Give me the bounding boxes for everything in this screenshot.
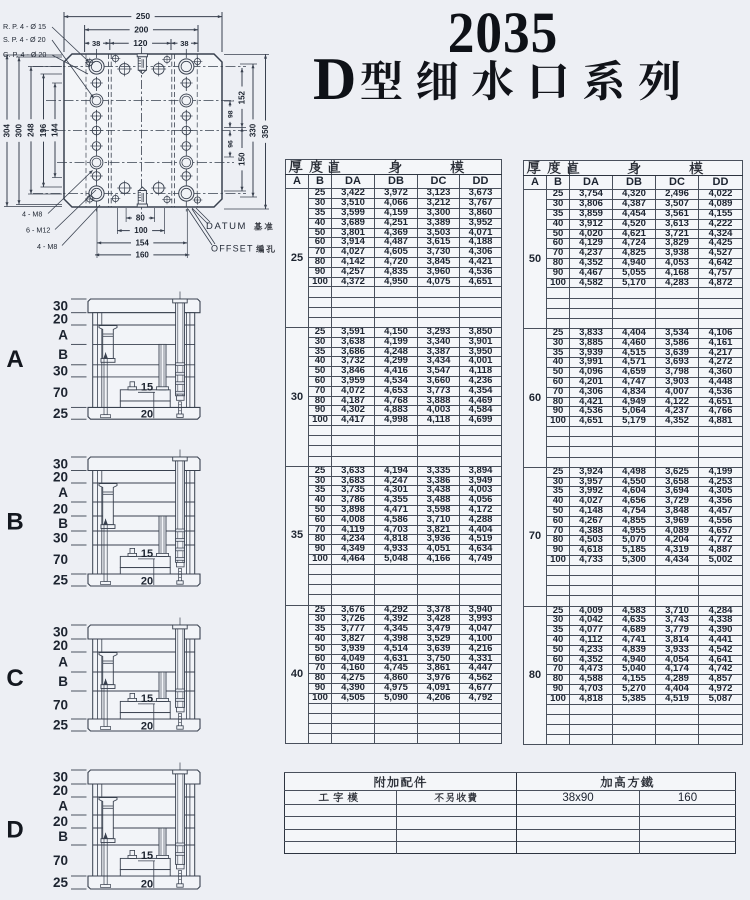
svg-text:70: 70	[53, 552, 68, 567]
svg-text:20: 20	[141, 721, 153, 733]
svg-text:152: 152	[237, 90, 246, 104]
svg-text:B: B	[58, 674, 68, 689]
svg-text:A: A	[58, 327, 68, 342]
svg-text:20: 20	[53, 638, 68, 653]
svg-text:160: 160	[136, 251, 150, 260]
svg-text:350: 350	[261, 124, 270, 138]
svg-text:20: 20	[141, 409, 153, 421]
svg-text:25: 25	[53, 573, 69, 588]
svg-text:B: B	[58, 829, 68, 844]
svg-text:38: 38	[180, 39, 188, 48]
svg-text:70: 70	[53, 385, 68, 400]
svg-text:20: 20	[141, 879, 153, 891]
svg-text:20: 20	[141, 576, 153, 588]
svg-text:A: A	[6, 346, 23, 373]
svg-text:304: 304	[2, 124, 11, 138]
svg-text:D: D	[6, 817, 23, 844]
svg-text:15: 15	[141, 850, 153, 862]
svg-text:20: 20	[53, 469, 68, 484]
svg-text:A: A	[58, 655, 68, 670]
svg-text:15: 15	[141, 693, 153, 705]
svg-text:25: 25	[53, 406, 69, 421]
svg-text:330: 330	[248, 123, 257, 137]
svg-text:R. P. 4 - Ø 15: R. P. 4 - Ø 15	[3, 22, 46, 31]
svg-text:B: B	[6, 509, 23, 536]
svg-text:20: 20	[53, 311, 68, 326]
svg-text:15: 15	[141, 381, 153, 393]
svg-text:C: C	[6, 665, 23, 692]
svg-text:120: 120	[133, 38, 147, 48]
svg-text:20: 20	[53, 783, 68, 798]
svg-text:196: 196	[39, 123, 48, 137]
svg-text:144: 144	[50, 123, 59, 137]
svg-text:80: 80	[136, 214, 145, 223]
svg-text:96: 96	[227, 140, 234, 148]
svg-text:25: 25	[53, 875, 69, 890]
svg-text:150: 150	[237, 152, 246, 166]
svg-text:B: B	[58, 516, 68, 531]
svg-text:70: 70	[53, 698, 68, 713]
svg-text:4 - M8: 4 - M8	[22, 210, 42, 219]
svg-text:30: 30	[53, 531, 68, 546]
svg-text:B: B	[58, 347, 68, 362]
svg-text:300: 300	[14, 124, 23, 138]
svg-text:38: 38	[92, 39, 100, 48]
svg-text:70: 70	[53, 853, 68, 868]
svg-text:4 - M8: 4 - M8	[37, 242, 57, 251]
svg-text:G. P. 4 - Ø 20: G. P. 4 - Ø 20	[3, 50, 46, 59]
svg-text:A: A	[58, 485, 68, 500]
svg-text:200: 200	[134, 24, 148, 34]
svg-text:6 - M12: 6 - M12	[26, 226, 50, 235]
svg-text:A: A	[58, 799, 68, 814]
svg-text:30: 30	[53, 363, 68, 378]
svg-text:S. P. 4 - Ø 20: S. P. 4 - Ø 20	[3, 35, 46, 44]
svg-text:154: 154	[135, 239, 149, 248]
svg-text:25: 25	[53, 718, 69, 733]
svg-text:OFFSET: OFFSET	[211, 244, 254, 254]
svg-text:248: 248	[26, 123, 35, 137]
svg-text:250: 250	[136, 11, 150, 21]
svg-text:20: 20	[53, 502, 68, 517]
svg-text:98: 98	[227, 110, 234, 118]
svg-text:20: 20	[53, 814, 68, 829]
svg-text:15: 15	[141, 548, 153, 560]
svg-text:100: 100	[134, 226, 148, 235]
svg-text:DATUM: DATUM	[206, 221, 247, 232]
